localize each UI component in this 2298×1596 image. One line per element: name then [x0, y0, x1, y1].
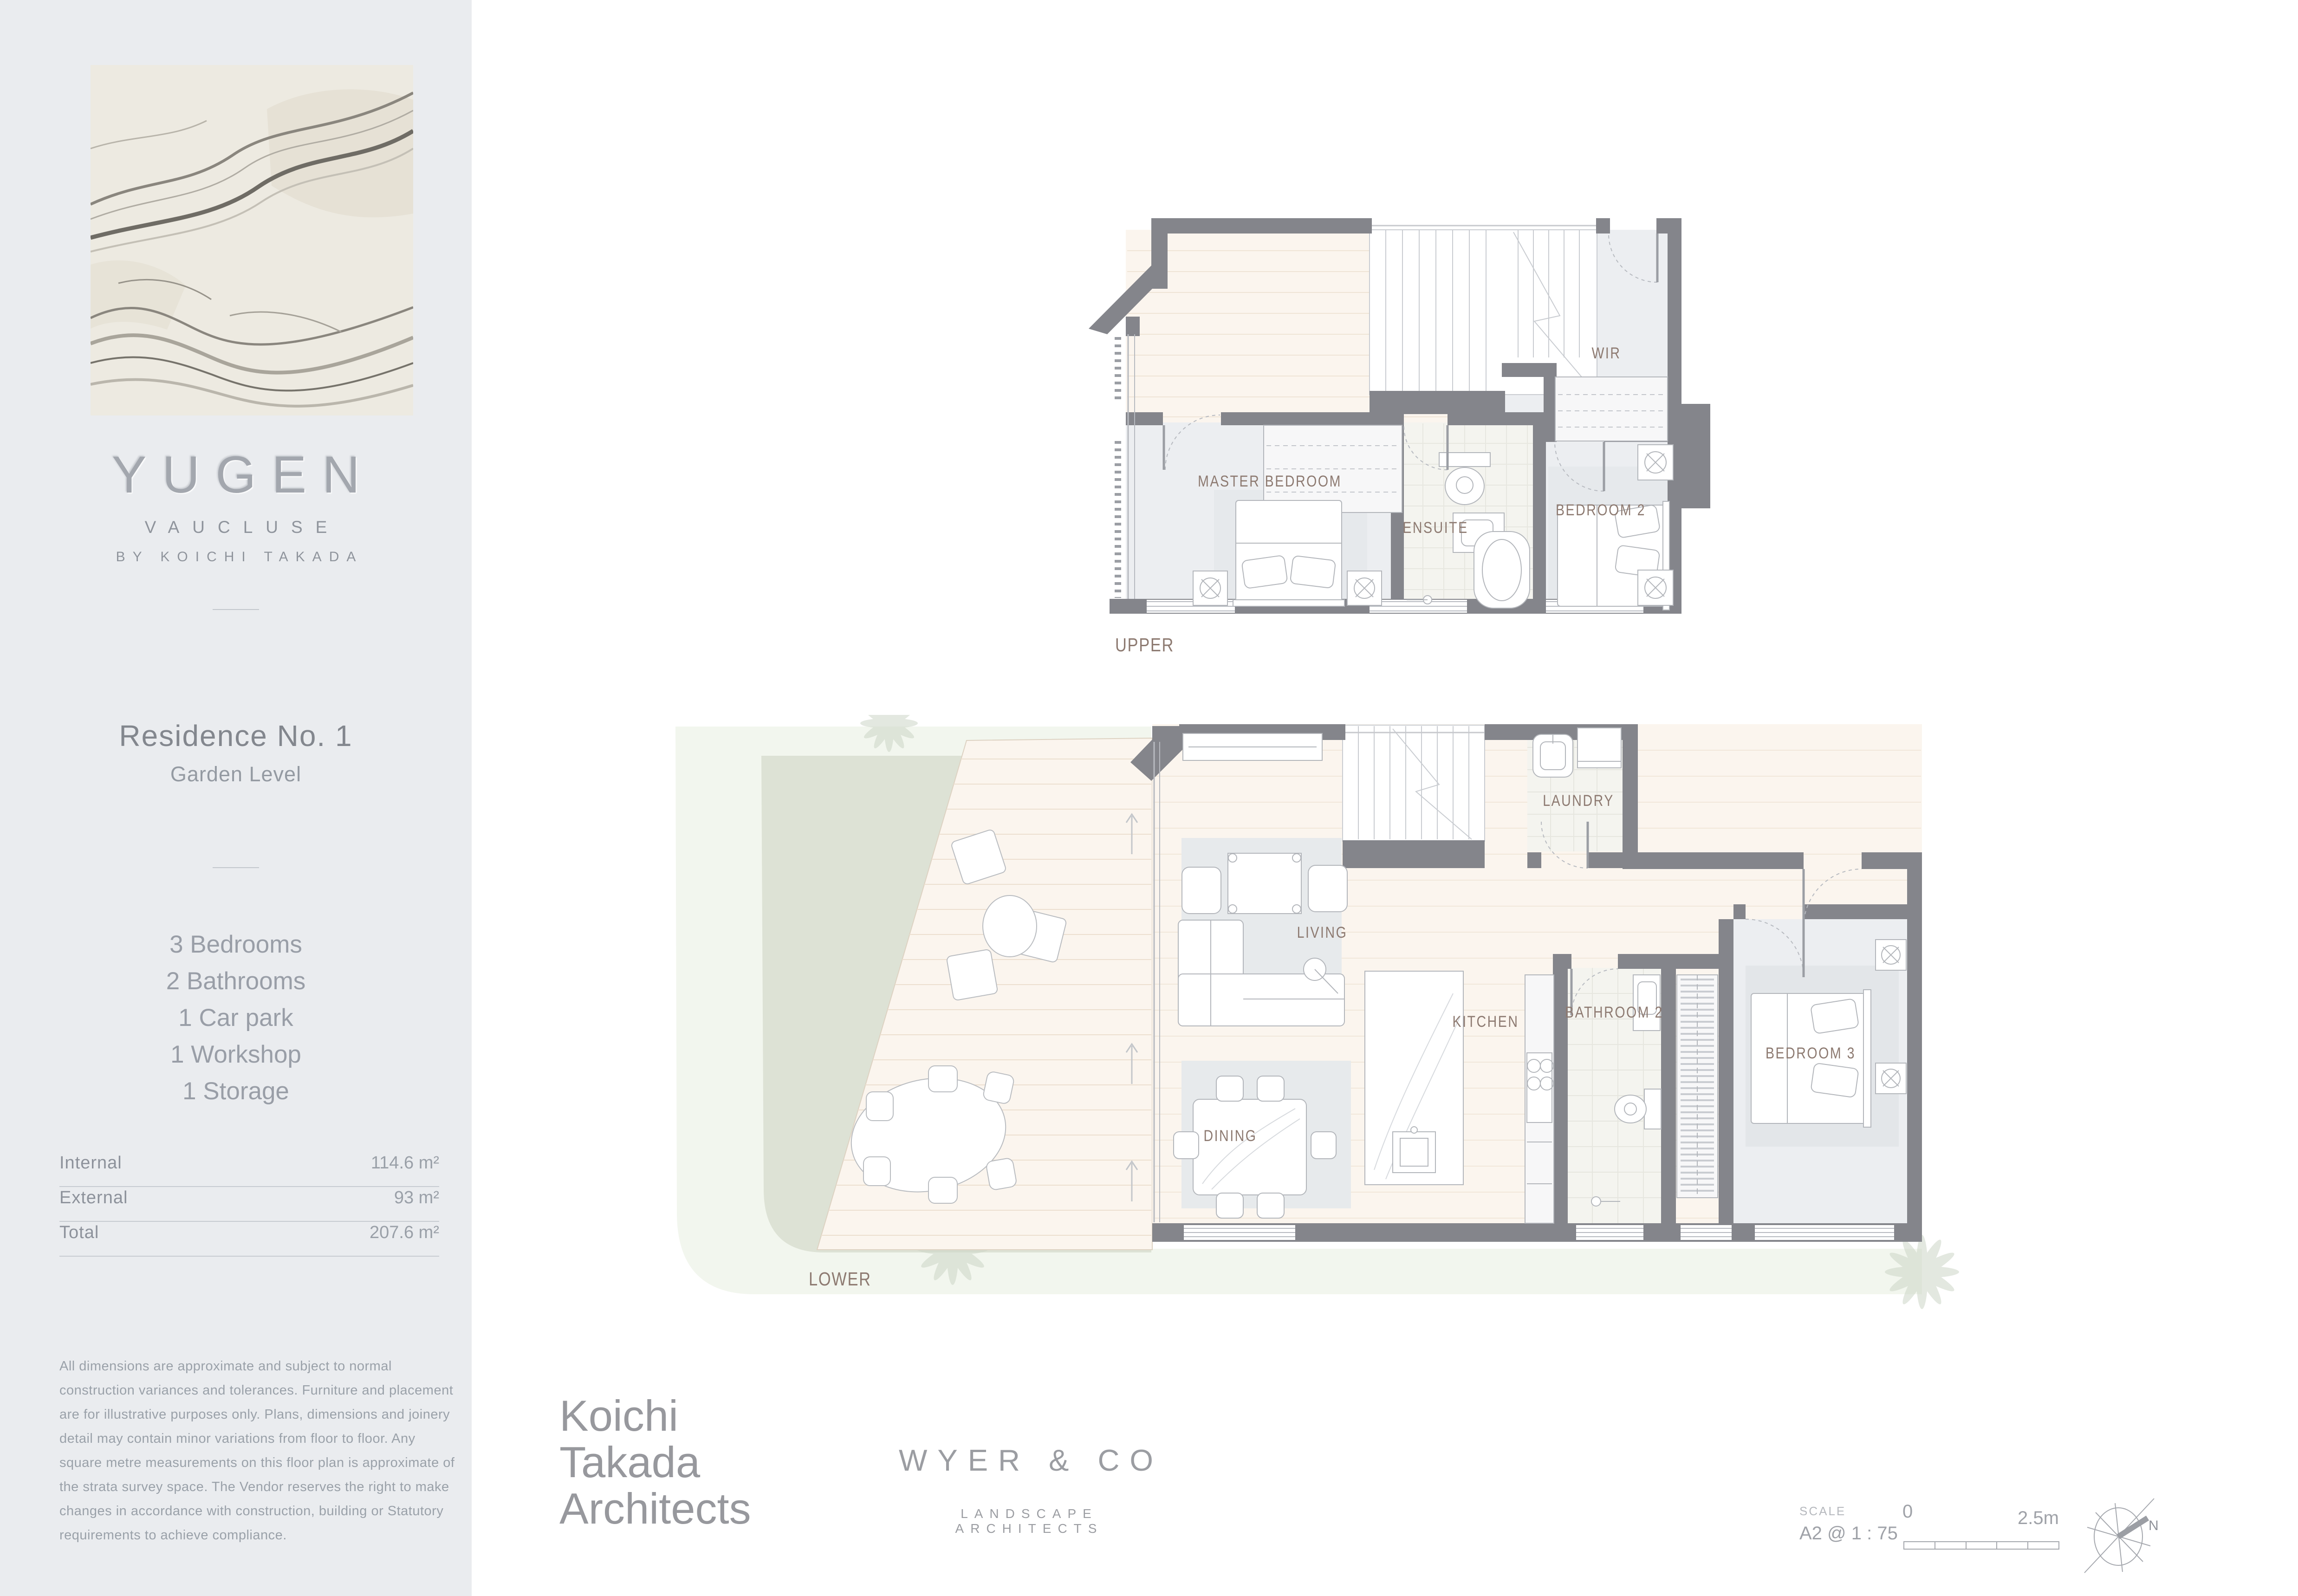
stone-texture-image	[91, 65, 413, 415]
scale-bar	[1903, 1541, 2059, 1550]
lower-floor-plan	[669, 715, 1968, 1309]
area-label: External	[59, 1188, 128, 1208]
scale-bar-cell	[1904, 1542, 1935, 1549]
area-row-internal: Internal 114.6 m²	[59, 1152, 439, 1187]
scale-block: SCALE A2 @ 1 : 75	[1799, 1504, 1898, 1544]
sofa	[1178, 974, 1344, 1026]
scale-bar-cell	[1997, 1542, 2028, 1549]
floorplan-brochure-page: YUGEN VAUCLUSE BY KOICHI TAKADA Residenc…	[0, 0, 2298, 1596]
hall-robe	[1677, 975, 1718, 1198]
toilet	[1644, 1089, 1661, 1129]
wir-robe	[1555, 377, 1668, 441]
feature-item: 1 Car park	[0, 999, 472, 1036]
scale-bar-cell	[2028, 1542, 2058, 1549]
room-label-laundry: LAUNDRY	[1543, 792, 1614, 810]
bedside-unit	[1876, 940, 1906, 970]
compass-north-label: N	[2149, 1518, 2159, 1534]
feature-item: 2 Bathrooms	[0, 963, 472, 999]
level-label-upper: UPPER	[1115, 634, 1174, 656]
scale-bar-cell	[1967, 1542, 1998, 1549]
area-label: Internal	[59, 1153, 122, 1173]
bedside-table	[1347, 571, 1382, 605]
bedside-unit	[1638, 445, 1673, 480]
room-label-bedroom2: BEDROOM 2	[1556, 501, 1646, 519]
room-label-living: LIVING	[1297, 924, 1348, 942]
area-label: Total	[59, 1223, 99, 1243]
washing-machine	[1577, 728, 1621, 768]
room-label-dining: DINING	[1203, 1127, 1257, 1145]
room-label-bathroom2: BATHROOM 2	[1565, 1004, 1663, 1022]
landscape-logo-name: WYER & CO	[877, 1443, 1175, 1478]
area-value: 207.6 m²	[370, 1223, 439, 1243]
level-label-lower: LOWER	[809, 1268, 871, 1290]
area-table: Internal 114.6 m² External 93 m² Total 2…	[59, 1152, 439, 1257]
room-label-wir: WIR	[1591, 344, 1621, 363]
armchair	[1182, 867, 1221, 914]
disclaimer-text: All dimensions are approximate and subje…	[59, 1354, 459, 1547]
north-compass-icon	[2079, 1494, 2162, 1582]
room-label-master-bedroom: MASTER BEDROOM	[1198, 473, 1342, 491]
architect-logo-line: Takada	[559, 1439, 751, 1486]
area-value: 114.6 m²	[371, 1153, 439, 1173]
scale-label: SCALE	[1799, 1504, 1898, 1518]
room-label-bedroom3: BEDROOM 3	[1766, 1045, 1856, 1063]
upper-floor-plan	[1082, 200, 1732, 645]
brand-block: YUGEN VAUCLUSE BY KOICHI TAKADA	[0, 445, 472, 565]
scalebar-zero: 0	[1902, 1501, 1913, 1522]
dining-table	[1193, 1099, 1306, 1195]
landscape-architect-logo: WYER & CO LANDSCAPE ARCHITECTS	[877, 1443, 1175, 1536]
area-row-external: External 93 m²	[59, 1187, 439, 1222]
residence-subtitle: Garden Level	[0, 762, 472, 786]
brand-name: YUGEN	[0, 445, 472, 505]
armchair	[1308, 865, 1347, 912]
architect-logo-line: Koichi	[559, 1393, 751, 1439]
scalebar-max: 2.5m	[2018, 1508, 2059, 1529]
brand-location: VAUCLUSE	[0, 518, 472, 537]
divider	[213, 609, 259, 610]
scale-value: A2 @ 1 : 75	[1799, 1523, 1898, 1544]
feature-item: 3 Bedrooms	[0, 926, 472, 963]
room-label-kitchen: KITCHEN	[1453, 1013, 1519, 1031]
area-value: 93 m²	[394, 1188, 439, 1208]
architect-logo-line: Architects	[559, 1486, 751, 1532]
room-label-ensuite: ENSUITE	[1402, 519, 1468, 537]
area-row-total: Total 207.6 m²	[59, 1222, 439, 1257]
architect-logo: Koichi Takada Architects	[559, 1393, 751, 1532]
feature-item: 1 Workshop	[0, 1036, 472, 1073]
coffee-table	[1228, 853, 1301, 914]
feature-list: 3 Bedrooms 2 Bathrooms 1 Car park 1 Work…	[0, 926, 472, 1109]
bedside-unit	[1638, 570, 1673, 605]
shower-point	[1591, 1197, 1601, 1206]
sidebar: YUGEN VAUCLUSE BY KOICHI TAKADA Residenc…	[0, 0, 472, 1596]
feature-item: 1 Storage	[0, 1073, 472, 1109]
divider	[213, 867, 259, 868]
brand-byline: BY KOICHI TAKADA	[0, 549, 472, 565]
residence-title: Residence No. 1	[0, 719, 472, 753]
master-robe	[1264, 425, 1402, 513]
scale-bar-cell	[1935, 1542, 1967, 1549]
bedside-table	[1193, 571, 1227, 605]
landscape-logo-tagline: LANDSCAPE ARCHITECTS	[877, 1506, 1175, 1536]
bedside-unit	[1876, 1063, 1906, 1094]
